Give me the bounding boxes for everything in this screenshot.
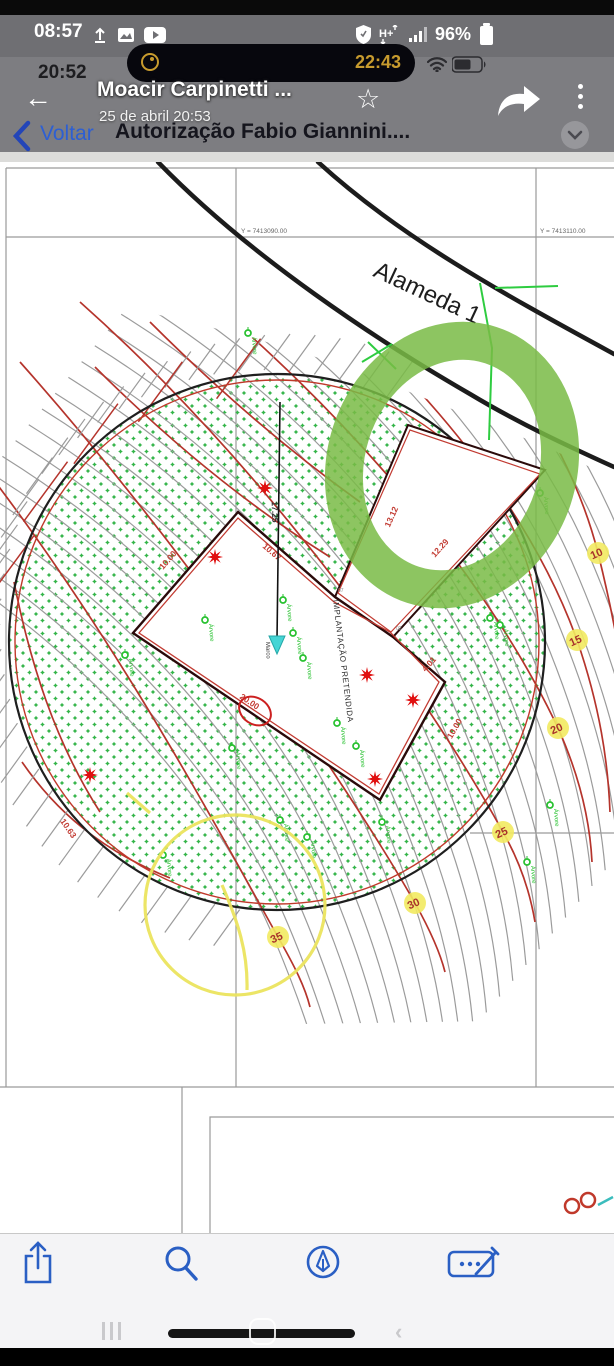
svg-text:Árvore: Árvore — [502, 629, 510, 648]
android-notification-icons — [92, 25, 166, 45]
svg-text:Árvore: Árvore — [285, 604, 293, 623]
ios-preview-toolbar: ‹ — [0, 1233, 614, 1348]
youtube-icon — [144, 27, 166, 43]
upload-icon — [92, 25, 108, 45]
corner-label: 07 — [338, 588, 344, 594]
tree-marker: Árvore — [245, 327, 258, 355]
svg-text:Árvore: Árvore — [295, 637, 303, 656]
media-sender-title: Moacir Carpinetti ... — [97, 78, 397, 102]
dynamic-island-timer[interactable]: 22:43 — [127, 44, 415, 82]
svg-text:Árvore: Árvore — [339, 727, 347, 746]
timer-countdown: 22:43 — [355, 52, 401, 73]
voltar-back-button[interactable]: Voltar — [40, 122, 94, 146]
tree-marker: Árvore — [524, 856, 537, 884]
share-icon[interactable] — [20, 1240, 60, 1286]
android-clock: 08:57 — [34, 21, 83, 43]
timer-ring-icon — [141, 53, 159, 71]
top-bezel — [0, 0, 614, 15]
grid-y-label: Y = 7413110.00 — [540, 228, 586, 235]
ios-clock: 20:52 — [38, 62, 87, 84]
svg-text:Árvore: Árvore — [127, 659, 135, 678]
svg-text:Árvore: Árvore — [207, 624, 215, 643]
svg-text:Árvore: Árvore — [552, 809, 560, 828]
vpn-shield-icon — [356, 25, 371, 44]
red-scribble — [565, 1193, 613, 1213]
document-title: Autorização Fabio Giannini.... — [115, 120, 410, 144]
collapse-chevron-icon[interactable] — [561, 121, 589, 149]
wifi-icon — [427, 56, 447, 72]
svg-text:Árvore: Árvore — [250, 337, 258, 356]
red-star-icon — [359, 667, 375, 683]
svg-text:Árvore: Árvore — [358, 750, 366, 769]
divider-strip — [0, 152, 614, 162]
star-icon[interactable]: ☆ — [356, 84, 380, 115]
contour-label: 15 — [566, 629, 588, 651]
red-star-icon — [82, 767, 98, 783]
svg-text:Árvore: Árvore — [529, 866, 537, 885]
ios-battery-icon — [452, 56, 488, 73]
corner-label: 03 — [396, 626, 402, 632]
red-star-icon — [207, 549, 223, 565]
back-icon[interactable]: ‹ — [395, 1319, 402, 1345]
contour-label: 25 — [492, 821, 514, 843]
bottom-bezel — [0, 1348, 614, 1366]
home-button-ring-icon[interactable] — [249, 1318, 276, 1345]
contour-label: 20 — [547, 717, 569, 739]
site-plan-drawing[interactable]: Y = 7413090.00 Y = 7413110.00 — [0, 162, 614, 1233]
battery-icon — [479, 23, 494, 45]
gallery-icon — [117, 26, 135, 44]
search-icon[interactable] — [160, 1240, 202, 1286]
signature-field-icon[interactable] — [446, 1236, 502, 1286]
svg-text:Árvore: Árvore — [384, 826, 392, 845]
recents-icon[interactable] — [102, 1322, 121, 1340]
kebab-menu-icon[interactable] — [578, 84, 584, 114]
grid-y-label: Y = 7413090.00 — [241, 228, 287, 235]
back-chevron-icon[interactable] — [12, 120, 32, 152]
back-arrow-icon[interactable]: ← — [24, 84, 52, 112]
forward-share-icon[interactable] — [496, 84, 544, 118]
contour-label: 35 — [267, 926, 289, 948]
contour-label: 30 — [404, 892, 426, 914]
svg-text:Árvore: Árvore — [234, 752, 242, 771]
street-label: Alameda 1 — [369, 257, 484, 330]
svg-text:Árvore: Árvore — [165, 859, 173, 878]
markup-pen-icon[interactable] — [303, 1240, 345, 1286]
tree-marker: Árvore — [547, 799, 560, 827]
battery-percent-label: 96% — [435, 24, 471, 45]
contour-label: 10 — [587, 542, 609, 564]
pdf-page[interactable]: Y = 7413090.00 Y = 7413110.00 — [0, 162, 614, 1233]
phone-screen: 08:57 H+ 96% 20:52 22:43 ← Moacir Carpin… — [0, 0, 614, 1366]
android-system-icons: H+ 96% — [356, 23, 494, 45]
svg-text:H+: H+ — [379, 28, 393, 40]
red-star-icon — [257, 480, 273, 496]
svg-text:Árvore: Árvore — [305, 662, 313, 681]
hplus-network-icon: H+ — [379, 25, 401, 44]
signal-bars-icon — [409, 25, 427, 43]
red-star-icon — [367, 771, 383, 787]
marco-label: Marco — [264, 642, 271, 660]
red-star-icon — [405, 692, 421, 708]
